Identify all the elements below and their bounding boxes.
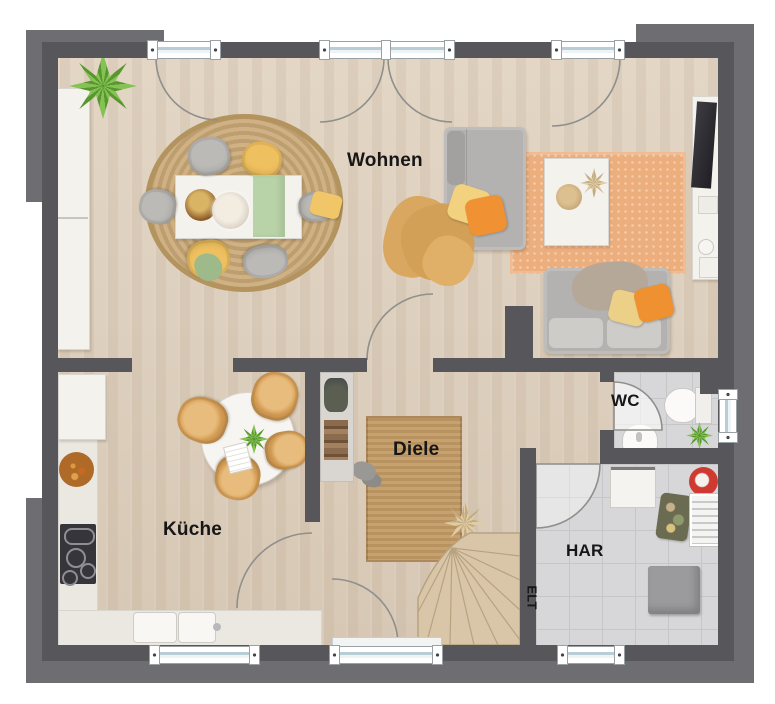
room-label-wc: WC: [611, 391, 640, 411]
floor-plan: Wohnen Küche Diele WC HAR ELT: [0, 0, 775, 704]
room-label-diele: Diele: [393, 439, 439, 461]
window-wc-right: [719, 390, 737, 442]
window-door-arc-1: [156, 58, 218, 120]
winder-staircase: [418, 533, 520, 645]
wall-har-left: [520, 448, 536, 645]
room-label-kueche: Küche: [163, 519, 222, 541]
wall-living-bottom-left: [233, 358, 367, 372]
wall-kitchen-top: [58, 358, 132, 372]
doors-and-stairs-overlay: [0, 0, 775, 704]
wc-duct-pier: [700, 372, 718, 394]
door-swing-arcs: [156, 58, 620, 645]
window-har-bottom: [558, 646, 624, 664]
window-door-arc-3: [552, 58, 620, 126]
entrance-door-arc: [332, 579, 398, 645]
room-label-wohnen: Wohnen: [347, 150, 423, 172]
wall-wc-bottom: [600, 448, 718, 464]
wall-wc-left-upper: [600, 372, 614, 382]
window-door-arc-2a: [320, 58, 384, 122]
entrance-door-window: [330, 646, 442, 664]
window-top-2-mullion: [381, 40, 391, 60]
living-hall-door-arc: [367, 294, 433, 360]
wall-left: [42, 42, 58, 661]
wall-kitchen-hall: [305, 372, 320, 522]
niche-vase-decor: [324, 378, 348, 412]
har-door-arc: [536, 464, 600, 528]
window-kitchen-bottom: [150, 646, 259, 664]
window-door-arc-2b: [388, 58, 452, 122]
niche-books: [324, 420, 348, 460]
wall-wc-left-lower: [600, 430, 614, 448]
window-top-3: [552, 41, 624, 59]
room-label-elt: ELT: [525, 585, 540, 609]
chimney-pier: [505, 306, 533, 358]
wall-right: [718, 42, 734, 661]
kitchen-door-arc: [237, 533, 312, 608]
wall-living-bottom-right: [433, 358, 718, 372]
window-top-1: [148, 41, 220, 59]
room-label-har: HAR: [566, 541, 603, 561]
